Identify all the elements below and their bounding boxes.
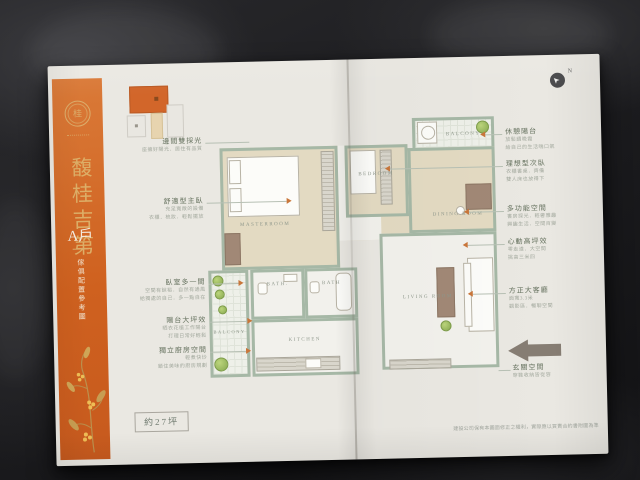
- callout-subtext: 座擁好陽光．居住有品質: [90, 146, 202, 157]
- area-badge: 約27坪: [134, 411, 188, 432]
- callout-subtext: 觀影區．暢聊空間: [509, 302, 604, 312]
- callout-subtext: 鎖住美味的廚房規劃: [95, 363, 207, 374]
- callout-independent-kitchen: 獨立廚房空間 輕煮快炒 鎖住美味的廚房規劃: [95, 346, 208, 374]
- callout-double-daylight: 邊間雙採光 座擁好陽光．居住有品質: [90, 137, 202, 157]
- callout-arrow-icon: [480, 131, 485, 137]
- callout-square-living-room: 方正大客廳 面寬3.3米 觀影區．暢聊空間: [509, 285, 605, 312]
- master-wardrobe: [321, 151, 336, 231]
- bathtub: [335, 272, 352, 310]
- compass-icon: ➤: [550, 73, 565, 88]
- master-dresser: [224, 233, 241, 265]
- kitchen-sink: [305, 358, 321, 368]
- entrance-arrow-icon: [527, 344, 561, 357]
- callout-subtext: 挑高三米四: [508, 253, 603, 263]
- callout-extra-bedroom: 臥室多一間 空間有餘裕．自然有通風 給獨處的自己．多一點自在: [93, 278, 206, 306]
- callout-arrow-icon: [385, 166, 390, 172]
- callout-subtext: 興趣生活．空間百變: [507, 220, 602, 230]
- unit-label: A戶: [63, 224, 97, 246]
- callout-high-efficiency: 心動高坪效 零走道．大空間 挑高三米四: [508, 236, 604, 263]
- compass-north-label: N: [568, 68, 572, 74]
- entrance-arrow-icon: [508, 339, 528, 361]
- callout-arrow-icon: [238, 280, 243, 286]
- callout-arrow-icon: [247, 318, 252, 324]
- callout-subtext: 給自己的生活喘口氣: [505, 143, 600, 153]
- callout-subtext: 打理日常好輕鬆: [95, 333, 207, 344]
- leather-highlight: [0, 200, 50, 380]
- callout-balcony-efficiency: 陽台大坪效 晒衣花植工作陽台 打理日常好輕鬆: [94, 316, 207, 344]
- callout-subtext: 給獨處的自己．多一點自在: [94, 295, 206, 306]
- keyplan-diagram: [124, 83, 187, 142]
- keyplan-unit-a-highlight: [129, 86, 169, 114]
- keyplan-core: [151, 113, 164, 139]
- dining-table: [465, 183, 492, 210]
- callout-subtext: 衣櫃．梳妝．輕鬆擺放: [92, 214, 204, 225]
- orange-sidebar: 桂 馥桂吉第 A戶 傢俱配置參考圖: [52, 78, 111, 460]
- callout-arrow-icon: [468, 291, 473, 297]
- room-label-bath1: BATH.: [257, 282, 297, 288]
- tv-console: [389, 358, 451, 369]
- bedroom-wardrobe: [380, 150, 393, 205]
- callout-arrow-icon: [463, 242, 468, 248]
- callout-multifunction-space: 多功能空間 書房採光．輕奢雅趣 興趣生活．空間百變: [507, 203, 603, 230]
- callout-subtext: 雙人床也放得下: [506, 175, 601, 185]
- master-pillow: [229, 188, 242, 212]
- callout-second-bedroom: 理想型次臥 衣櫃書桌．齊備 雙人床也放得下: [506, 158, 602, 185]
- room-label-balcony-bottom: BALCONY: [209, 329, 251, 335]
- coffee-table: [436, 267, 455, 317]
- brand-seal-glyph: 桂: [67, 103, 87, 123]
- brand-seal-logo: 桂: [64, 100, 91, 127]
- unit-note-vertical: 傢俱配置參考圖: [76, 258, 87, 321]
- logo-caption-decoration: [67, 134, 89, 135]
- photo-of-floorplan-brochure: 桂 馥桂吉第 A戶 傢俱配置參考圖: [0, 0, 640, 480]
- kitchen-counter: [256, 356, 340, 372]
- brochure-page: 桂 馥桂吉第 A戶 傢俱配置參考圖: [48, 54, 609, 466]
- callout-entrance: 玄關空間 穿鞋收納皆從容: [512, 362, 607, 381]
- keyplan-mark: [135, 124, 138, 127]
- disclaimer-text: 建設公司保有本圖面修正之權利，實際應以買賣合約書附圖為準: [414, 422, 599, 433]
- callout-leader-line: [485, 134, 502, 135]
- callout-arrow-icon: [246, 348, 251, 354]
- callout-leader-line: [499, 370, 511, 371]
- callout-subtext: 穿鞋收納皆從容: [513, 371, 608, 381]
- callout-arrow-icon: [464, 209, 469, 215]
- keyplan-unit: [166, 104, 184, 137]
- callout-rest-balcony: 休憩陽台 放鬆讀晚霞 給自己的生活喘口氣: [505, 126, 601, 153]
- callout-arrow-icon: [287, 198, 292, 204]
- room-label-bath2: BATH: [311, 280, 351, 286]
- compass-arrow-icon: ➤: [551, 75, 561, 85]
- keyplan-mark: [154, 97, 158, 101]
- callout-master-bedroom: 舒適型主臥 充足寬敞的設備 衣櫃．梳妝．輕鬆擺放: [92, 197, 205, 225]
- master-pillow: [229, 160, 242, 184]
